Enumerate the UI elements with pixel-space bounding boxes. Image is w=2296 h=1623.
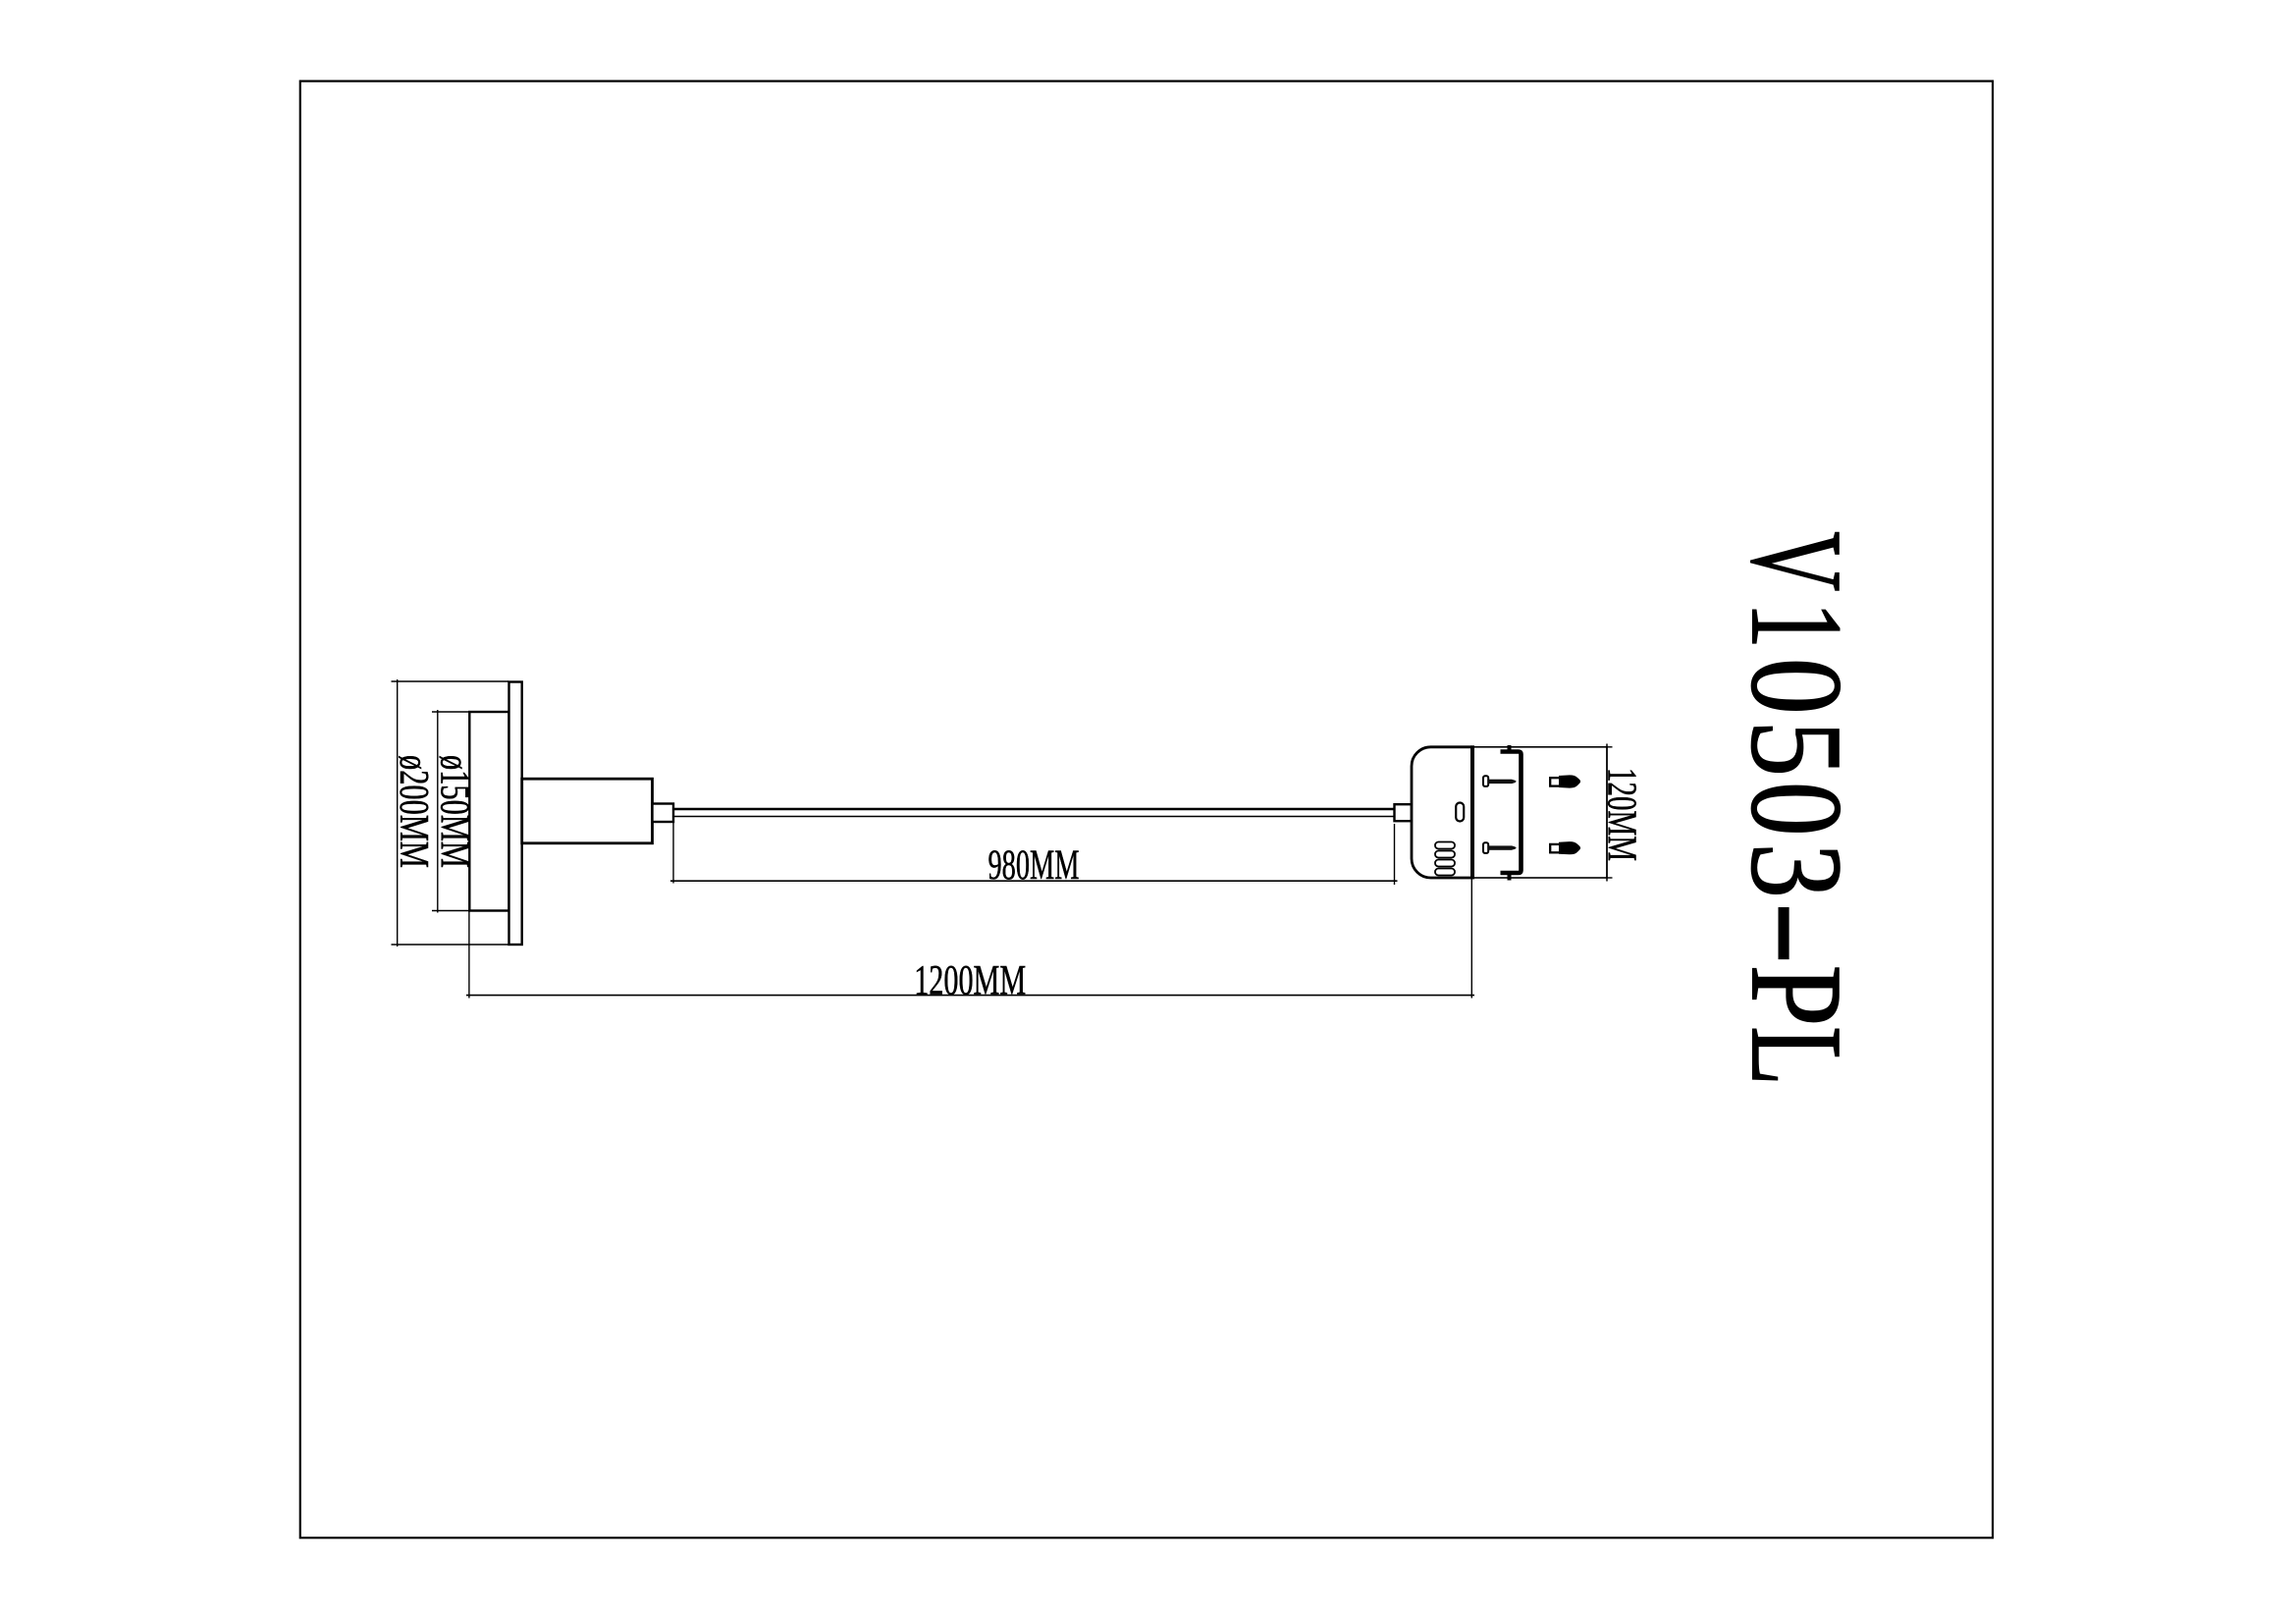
svg-text:1200MM: 1200MM [914, 958, 1026, 1004]
svg-text:0: 0 [1725, 782, 1870, 837]
svg-text:120MM: 120MM [1599, 768, 1644, 861]
svg-text:P: P [1725, 964, 1870, 1026]
svg-text:-: - [1725, 900, 1870, 965]
svg-text:980MM: 980MM [988, 842, 1080, 889]
svg-text:ø200MM: ø200MM [391, 755, 436, 868]
svg-text:L: L [1725, 1026, 1870, 1086]
svg-text:0: 0 [1725, 658, 1870, 715]
svg-text:V: V [1725, 531, 1870, 591]
svg-text:1: 1 [1725, 601, 1870, 649]
svg-text:3: 3 [1725, 842, 1870, 898]
svg-text:5: 5 [1725, 720, 1870, 777]
